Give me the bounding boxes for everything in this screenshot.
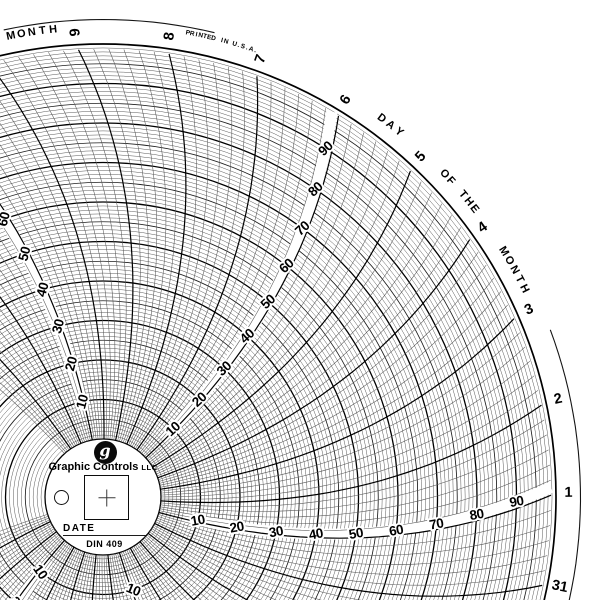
part-number: DIN 409 (63, 539, 146, 549)
ring-text-char: H (49, 23, 58, 36)
ring-text-char: N (223, 38, 230, 46)
date-label: DATE (63, 523, 95, 534)
hole-marker-icon (54, 490, 69, 505)
date-box (84, 475, 129, 520)
scale-label-50-day-1: 50 (348, 525, 364, 542)
day-label-6: 6 (337, 92, 355, 107)
time-subdivision-line (129, 56, 197, 445)
time-subdivision-line (146, 536, 503, 600)
scale-label-30-day-1: 30 (268, 523, 284, 540)
ring-text-char: O (16, 27, 27, 40)
day-label-31: 31 (550, 577, 569, 596)
time-subdivision-line (96, 555, 188, 600)
day-label-9: 9 (67, 28, 83, 37)
scale-label-70-day-1: 70 (428, 515, 444, 532)
day-label-1: 1 (564, 485, 572, 501)
ring-text-char: T (38, 24, 46, 37)
ring-text-char: D (210, 35, 216, 43)
day-label-4: 4 (475, 219, 491, 237)
brand-suffix: LLC (141, 463, 157, 472)
date-underline (63, 535, 146, 537)
scale-label-10-day-1: 10 (189, 512, 205, 529)
scale-label-60-day-1: 60 (388, 522, 404, 539)
time-subdivision-line (94, 49, 141, 441)
time-subdivision-line (159, 265, 486, 482)
logo-letter: g (99, 441, 110, 460)
day-label-2: 2 (552, 391, 563, 408)
scale-label-40-day-1: 40 (308, 525, 324, 542)
time-subdivision-line (135, 545, 444, 600)
day-label-8: 8 (161, 31, 178, 41)
day-label-5: 5 (412, 148, 429, 165)
scale-label-20-day-1: 20 (228, 518, 244, 535)
ring-text-char: N (27, 26, 37, 39)
time-subdivision-line (104, 555, 232, 600)
day-label-3: 3 (522, 301, 536, 319)
brand-name: Graphic Controls LLC (46, 461, 160, 473)
brand-text: Graphic Controls (49, 461, 139, 473)
circular-chart-paper: 1020304050601020304050607080901020304050… (0, 0, 600, 600)
ring-text-char: Y (392, 125, 406, 139)
day-label-7: 7 (252, 53, 270, 66)
scale-label-90-day-1: 90 (508, 493, 524, 510)
ring-text-char: H (517, 283, 531, 295)
scale-label-80-day-1: 80 (468, 506, 484, 523)
ring-text-char: M (5, 29, 16, 43)
center-hub: g Graphic Controls LLC DATE DIN 409 (46, 440, 160, 554)
